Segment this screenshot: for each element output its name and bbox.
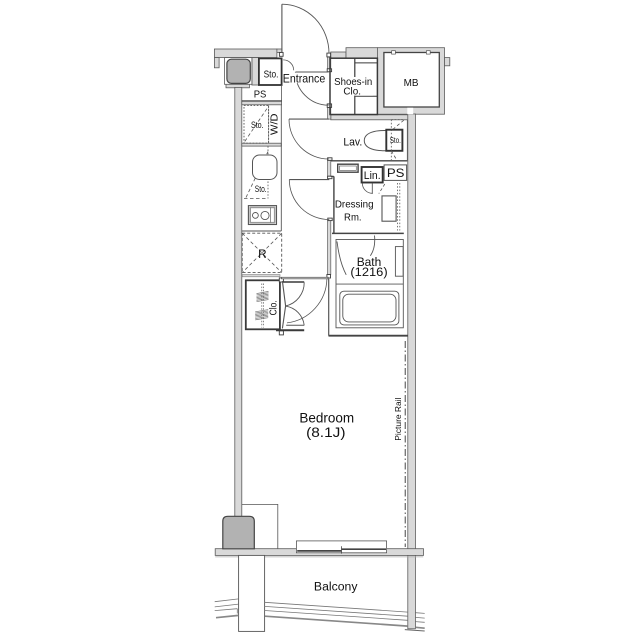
svg-text:Lav.: Lav. <box>343 137 362 149</box>
svg-text:Clo.: Clo. <box>267 300 279 315</box>
svg-text:(1216): (1216) <box>350 267 387 279</box>
svg-text:PS: PS <box>254 90 267 101</box>
svg-text:Balcony: Balcony <box>314 582 358 594</box>
svg-text:Rm.: Rm. <box>344 211 362 223</box>
svg-text:Picture Rail: Picture Rail <box>394 397 403 440</box>
svg-text:Bedroom: Bedroom <box>299 410 354 426</box>
svg-text:Sto.: Sto. <box>251 120 264 130</box>
svg-text:MB: MB <box>404 77 419 89</box>
svg-text:Sto.: Sto. <box>255 184 267 194</box>
svg-text:Clo.: Clo. <box>343 87 361 98</box>
svg-text:Sto.: Sto. <box>264 69 279 80</box>
svg-text:W/D: W/D <box>269 113 281 135</box>
svg-text:Lin.: Lin. <box>364 170 381 182</box>
svg-text:PS: PS <box>387 166 405 180</box>
svg-text:Entrance: Entrance <box>283 71 326 85</box>
svg-text:Sto.: Sto. <box>390 135 401 145</box>
svg-text:Dressing: Dressing <box>335 198 374 210</box>
svg-text:R: R <box>258 248 266 261</box>
svg-text:(8.1J): (8.1J) <box>306 425 345 440</box>
